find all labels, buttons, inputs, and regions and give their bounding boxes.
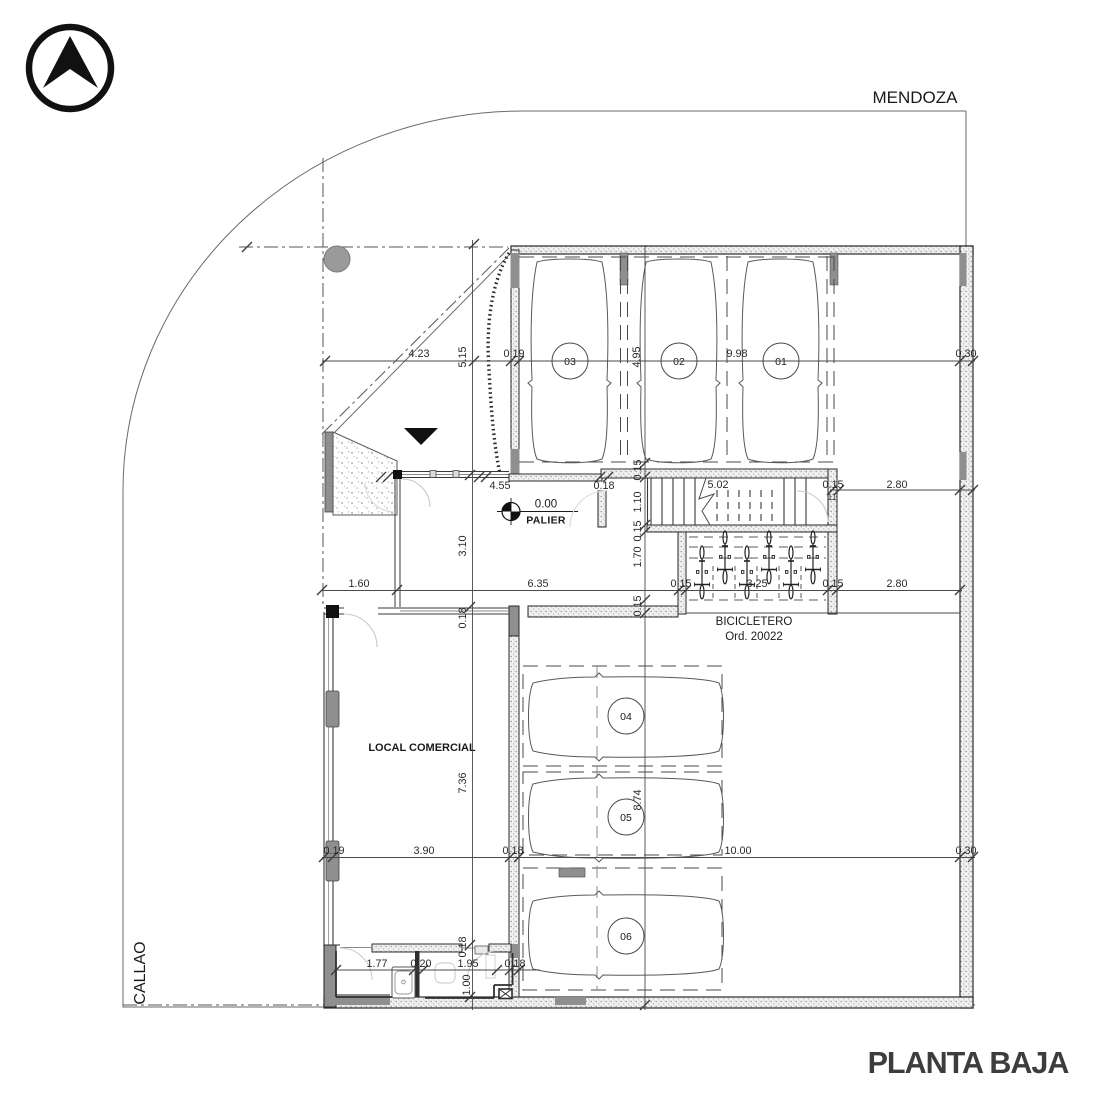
svg-text:02: 02 (673, 356, 685, 368)
svg-text:01: 01 (775, 356, 787, 368)
svg-text:0.00: 0.00 (535, 499, 557, 511)
svg-text:2.80: 2.80 (886, 578, 907, 590)
svg-text:0.19: 0.19 (503, 348, 524, 360)
svg-text:4.95: 4.95 (631, 346, 643, 367)
svg-text:0.15: 0.15 (632, 520, 644, 541)
svg-text:3.10: 3.10 (457, 535, 469, 556)
svg-text:1.60: 1.60 (348, 578, 369, 590)
svg-text:PALIER: PALIER (526, 515, 566, 527)
svg-text:0.15: 0.15 (822, 479, 843, 491)
svg-text:LOCAL COMERCIAL: LOCAL COMERCIAL (368, 742, 476, 754)
svg-text:5.15: 5.15 (457, 346, 469, 367)
svg-text:PLANTA BAJA: PLANTA BAJA (868, 1046, 1070, 1080)
svg-text:1.10: 1.10 (632, 491, 644, 512)
svg-text:1.95: 1.95 (457, 958, 478, 970)
svg-text:04: 04 (620, 711, 632, 723)
svg-text:1.70: 1.70 (632, 546, 644, 567)
svg-text:6.35: 6.35 (527, 578, 548, 590)
svg-text:1.77: 1.77 (366, 958, 387, 970)
svg-text:5.02: 5.02 (707, 479, 728, 491)
svg-text:4.23: 4.23 (408, 348, 429, 360)
svg-text:05: 05 (620, 812, 632, 824)
svg-text:0.18: 0.18 (502, 845, 523, 857)
svg-text:9.98: 9.98 (726, 348, 747, 360)
svg-text:0.15: 0.15 (670, 578, 691, 590)
svg-text:0.18: 0.18 (593, 480, 614, 492)
svg-text:4.55: 4.55 (489, 480, 510, 492)
svg-text:CALLAO: CALLAO (132, 941, 149, 1004)
svg-text:0.15: 0.15 (632, 595, 644, 616)
svg-text:06: 06 (620, 931, 632, 943)
svg-text:8.74: 8.74 (632, 789, 644, 810)
svg-text:0.15: 0.15 (632, 459, 644, 480)
svg-text:Ord. 20022: Ord. 20022 (725, 631, 783, 643)
svg-text:10.00: 10.00 (724, 845, 751, 857)
svg-text:MENDOZA: MENDOZA (873, 88, 959, 107)
svg-text:0.15: 0.15 (822, 578, 843, 590)
svg-text:0.30: 0.30 (955, 348, 976, 360)
svg-text:0.30: 0.30 (955, 845, 976, 857)
svg-text:0.19: 0.19 (323, 845, 344, 857)
svg-text:0.18: 0.18 (504, 958, 525, 970)
svg-text:3.25: 3.25 (746, 578, 767, 590)
svg-text:03: 03 (564, 356, 576, 368)
svg-text:7.36: 7.36 (457, 772, 469, 793)
svg-text:1.00: 1.00 (461, 974, 473, 995)
svg-text:0.20: 0.20 (410, 958, 431, 970)
svg-text:3.90: 3.90 (413, 845, 434, 857)
svg-text:0.18: 0.18 (457, 607, 469, 628)
svg-text:BICICLETERO: BICICLETERO (716, 616, 793, 628)
svg-text:0.18: 0.18 (457, 936, 469, 957)
svg-text:2.80: 2.80 (886, 479, 907, 491)
